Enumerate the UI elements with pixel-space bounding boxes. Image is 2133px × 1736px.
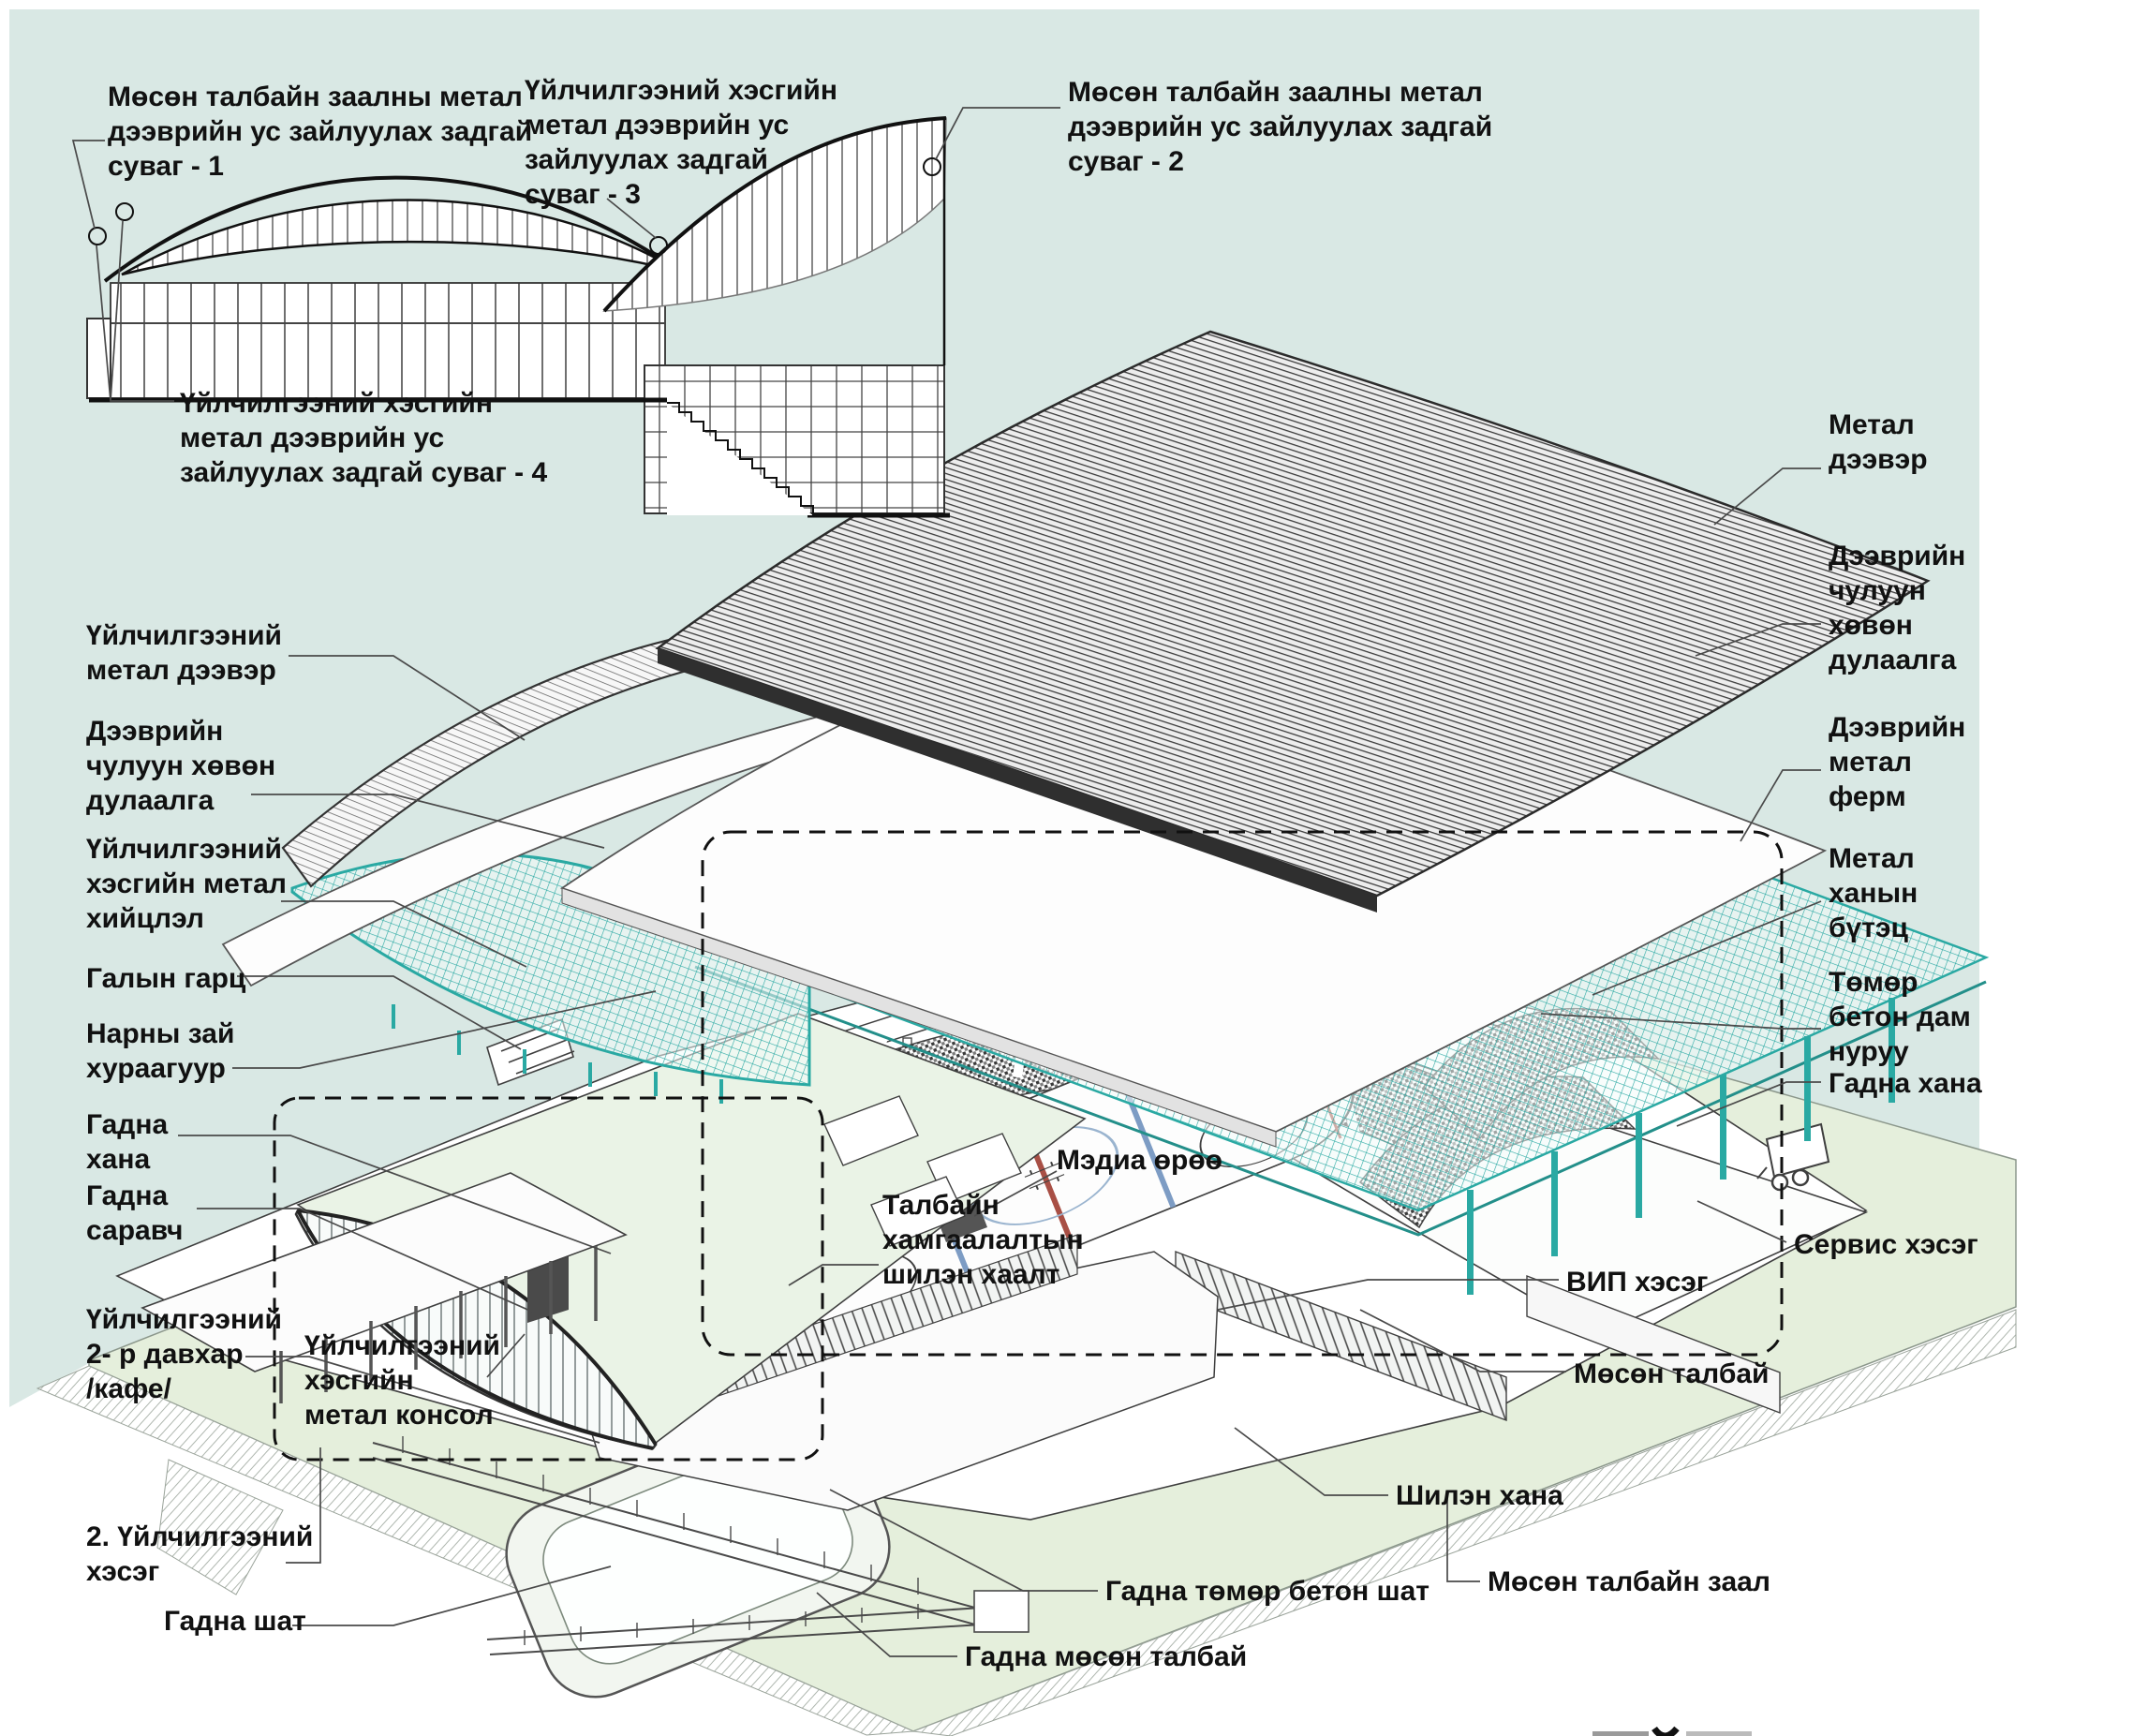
label-concrete-beam: Төмөр бетон дам нуруу <box>1829 965 1971 1069</box>
label-service-metal-console: Үйлчилгээний хэсгийн метал консол <box>304 1328 500 1432</box>
label-rink-protective-glass: Талбайн хамгаалалтын шилэн хаалт <box>882 1188 1084 1292</box>
label-outdoor-stair: Гадна шат <box>164 1604 306 1639</box>
label-outer-wall-left: Гадна хана <box>86 1107 168 1177</box>
label-ice-field: Мөсөн талбай <box>1574 1357 1769 1391</box>
label-solar-collector: Нарны зай хураагуур <box>86 1016 234 1086</box>
label-drain-channel-3: Үйлчилгээний хэсгийн метал дээврийн ус з… <box>525 73 837 212</box>
label-ice-hall: Мөсөн талбайн заал <box>1488 1565 1770 1599</box>
label-drain-channel-1: Мөсөн талбайн заалны метал дээврийн ус з… <box>108 80 532 184</box>
label-outdoor-concrete-stair: Гадна төмөр бетон шат <box>1105 1574 1429 1609</box>
exploded-arena-diagram: Мөсөн талбайн заалны метал дээврийн ус з… <box>0 0 2133 1736</box>
label-service-2nd-floor: Үйлчилгээний 2- р давхар /кафе/ <box>86 1302 282 1406</box>
label-roof-insulation-left: Дээврийн чулуун хөвөн дулаалга <box>86 714 275 818</box>
label-outer-canopy: Гадна саравч <box>86 1179 183 1248</box>
label-vip-zone: ВИП хэсэг <box>1566 1265 1708 1299</box>
label-roof-insulation-right: Дээврийн чулуун хөвөн дулаалга <box>1829 539 1965 677</box>
label-service-metal-structure: Үйлчилгээний хэсгийн метал хийцлэл <box>86 832 287 936</box>
label-outdoor-ice-field: Гадна мөсөн талбай <box>965 1640 1247 1674</box>
label-outer-wall-right: Гадна хана <box>1829 1066 1982 1101</box>
label-glass-wall: Шилэн хана <box>1396 1478 1563 1513</box>
label-drain-channel-4: Үйлчилгээний хэсгийн метал дээврийн ус з… <box>180 386 547 490</box>
label-drain-channel-2: Мөсөн талбайн заалны метал дээврийн ус з… <box>1068 75 1492 179</box>
label-fire-exit: Галын гарц <box>86 961 245 996</box>
cut-off-caption <box>1592 1729 1752 1736</box>
label-metal-wall-structure: Метал ханын бүтэц <box>1829 841 1918 945</box>
label-service-section-2: 2. Үйлчилгээний хэсэг <box>86 1520 313 1589</box>
label-metal-roof: Метал дээвэр <box>1829 408 1928 477</box>
label-service-metal-roof: Үйлчилгээний метал дээвэр <box>86 618 282 688</box>
label-media-room: Мэдиа өрөө <box>1057 1143 1222 1178</box>
diagram-canvas <box>0 0 2133 1736</box>
label-roof-metal-truss: Дээврийн метал ферм <box>1829 710 1965 814</box>
label-service-zone: Сервис хэсэг <box>1794 1227 1978 1262</box>
